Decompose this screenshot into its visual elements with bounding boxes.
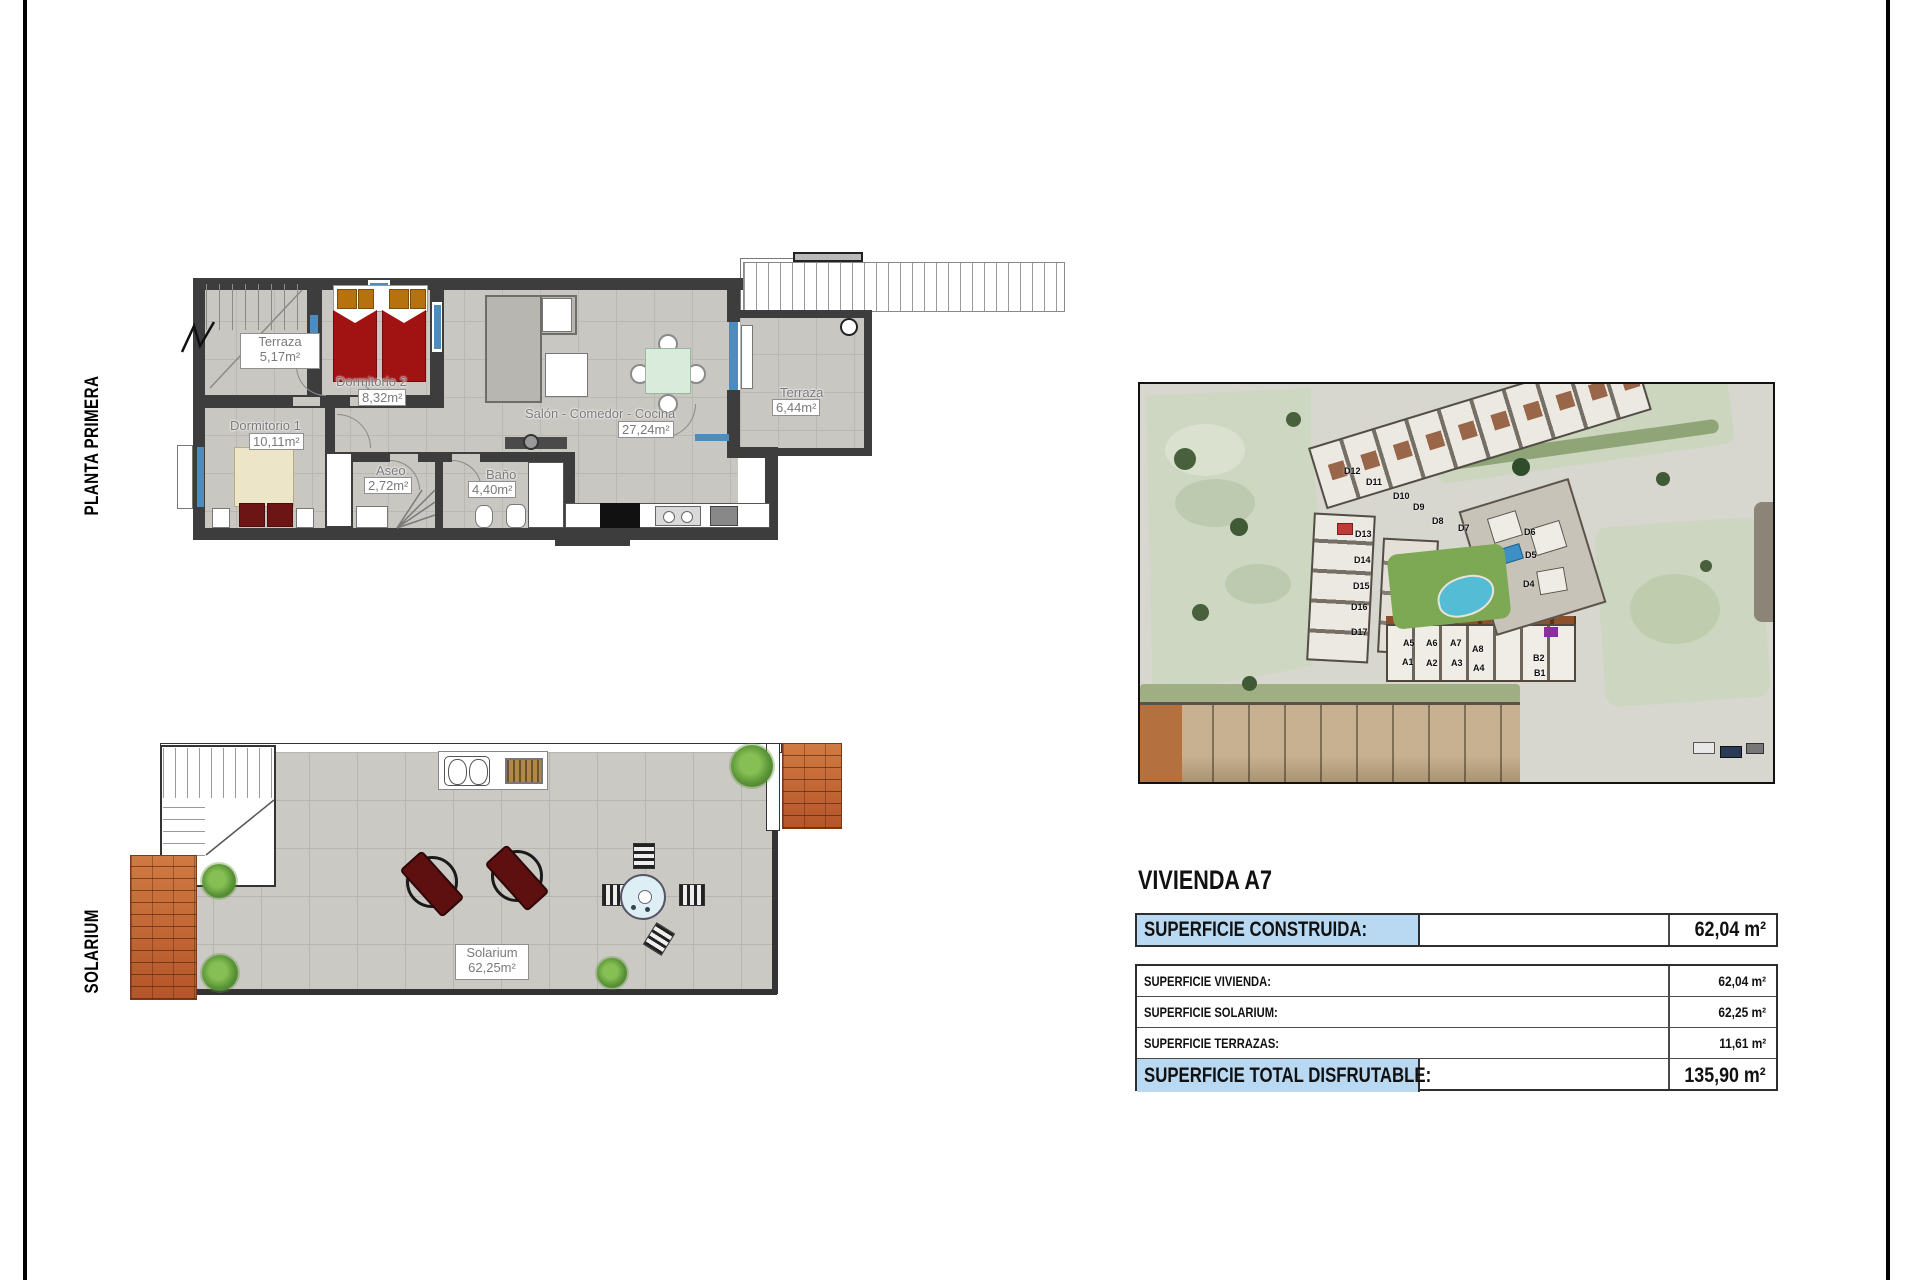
- page-border-left: [23, 0, 27, 1280]
- unit-label: A1: [1402, 657, 1414, 667]
- wall: [325, 408, 335, 452]
- plant: [731, 745, 773, 787]
- shutter-box: [177, 445, 193, 509]
- summary-table: SUPERFICIE CONSTRUIDA: 62,04 m²: [1135, 913, 1778, 947]
- room-area: 27,24m²: [618, 421, 674, 438]
- bath-sink: [475, 505, 493, 528]
- sink-bowl: [469, 759, 488, 785]
- stair-treads: [163, 798, 205, 856]
- unit-label: D11: [1366, 477, 1382, 487]
- tree: [1242, 676, 1257, 691]
- unit-title: VIVIENDA A7: [1138, 865, 1306, 896]
- wall: [727, 390, 740, 450]
- plan-sheet-page: PLANTA PRIMERA SOLARIUM: [0, 0, 1920, 1280]
- row-value: 11,61 m²: [1711, 1028, 1766, 1058]
- sink-bowl: [448, 759, 467, 785]
- terrace-column: [840, 318, 858, 336]
- table-detail: [631, 905, 636, 910]
- table-detail: [645, 907, 650, 912]
- sofa-chaise: [485, 295, 542, 403]
- pillow: [239, 503, 265, 527]
- building: [1536, 567, 1568, 595]
- field-texture: [1225, 564, 1291, 604]
- existing-house-roof: [1140, 702, 1182, 784]
- tree: [1230, 518, 1248, 536]
- room-area: 8,32m²: [358, 389, 406, 406]
- colored-awning: [1544, 627, 1558, 637]
- tree: [1700, 560, 1712, 572]
- palm-tree: [1512, 458, 1530, 476]
- row-label: SUPERFICIE VIVIENDA:: [1137, 966, 1776, 996]
- window-glass: [197, 447, 204, 507]
- room-name: Terraza: [780, 385, 823, 400]
- existing-houses-row: [1140, 702, 1520, 784]
- unit-label: A6: [1426, 638, 1438, 648]
- room-name: Terraza: [244, 334, 316, 349]
- unit-label: D9: [1413, 502, 1425, 512]
- terrace-door-glass: [695, 434, 729, 441]
- room-area: 6,44m²: [772, 399, 820, 416]
- roof-tiles: [782, 743, 842, 829]
- highlight-cell: SUPERFICIE TOTAL DISFRUTABLE:: [1137, 1059, 1420, 1092]
- striped-chair: [633, 843, 655, 869]
- kitchen-sink: [655, 506, 701, 526]
- pillow: [267, 503, 293, 527]
- sink-bowl: [681, 511, 693, 523]
- room-area: 62,25m²: [459, 960, 525, 975]
- shutter-box: [741, 325, 753, 389]
- side-label-solarium: SOLARIUM: [82, 912, 104, 1004]
- pillow: [389, 289, 409, 309]
- window-glass: [729, 322, 738, 390]
- room-area: 4,40m²: [468, 481, 516, 498]
- shower: [528, 462, 564, 528]
- room-area: 2,72m²: [364, 477, 412, 494]
- unit-label: A2: [1426, 658, 1438, 668]
- roof-tiles: [130, 855, 197, 1000]
- exterior-stair: [743, 262, 1065, 312]
- room-name: Baño: [486, 467, 516, 482]
- terrace-floor: [740, 316, 864, 452]
- row-value: 62,04 m²: [1710, 966, 1766, 996]
- bed: [234, 447, 294, 507]
- wall: [738, 310, 872, 318]
- pillow: [337, 289, 357, 309]
- stair-edge-bar: [793, 252, 863, 262]
- row-label: SUPERFICIE SOLARIUM:: [1137, 997, 1776, 1027]
- unit-label: D5: [1525, 550, 1537, 560]
- wall: [740, 448, 872, 456]
- unit-label: D16: [1351, 602, 1368, 612]
- pillow: [410, 289, 426, 309]
- car: [1720, 746, 1742, 758]
- table-row: SUPERFICIE TERRAZAS: 11,61 m²: [1137, 1028, 1776, 1059]
- field-texture: [1630, 574, 1720, 644]
- wall: [555, 538, 630, 546]
- room-area: 5,17m²: [244, 349, 316, 364]
- summary-label: SUPERFICIE CONSTRUIDA:: [1137, 915, 1418, 945]
- side-label-planta-primera: PLANTA PRIMERA: [82, 368, 104, 533]
- car: [1746, 743, 1764, 754]
- page-border-right: [1886, 0, 1890, 1280]
- unit-label: D7: [1458, 523, 1470, 533]
- table-row-total: SUPERFICIE TOTAL DISFRUTABLE: 135,90 m²: [1137, 1059, 1776, 1092]
- unit-label: A8: [1472, 644, 1484, 654]
- tree: [1656, 472, 1670, 486]
- pillow: [358, 289, 374, 309]
- closet: [325, 452, 353, 528]
- plant: [597, 958, 627, 988]
- column-divider: [1668, 966, 1670, 1089]
- car: [1693, 742, 1715, 754]
- appliance: [710, 506, 738, 526]
- tree: [1174, 448, 1196, 470]
- row-label: SUPERFICIE TERRAZAS:: [1137, 1028, 1776, 1058]
- room-label-solarium: Solarium 62,25m²: [455, 944, 529, 980]
- plant: [202, 955, 238, 991]
- unit-label: A4: [1473, 663, 1485, 673]
- door-opening: [293, 397, 323, 406]
- row-value: 135,90 m²: [1670, 1059, 1766, 1092]
- hedge: [1140, 684, 1520, 704]
- aseo-sink: [356, 506, 388, 528]
- unit-label: A3: [1451, 658, 1463, 668]
- row-value: 62,25 m²: [1710, 997, 1766, 1027]
- room-name: Aseo: [376, 463, 406, 478]
- tree: [1286, 412, 1301, 427]
- summary-value: 62,04 m²: [1682, 915, 1766, 945]
- dining-table: [645, 348, 691, 394]
- column-divider: [1668, 915, 1670, 945]
- dark-lot: [1754, 502, 1775, 622]
- unit-label: A7: [1450, 638, 1462, 648]
- unit-label: D17: [1351, 627, 1368, 637]
- table-row: SUPERFICIE VIVIENDA: 62,04 m²: [1137, 966, 1776, 997]
- cooktop: [600, 503, 640, 528]
- striped-chair: [679, 884, 705, 906]
- plant: [202, 864, 236, 898]
- table-detail: [638, 890, 652, 904]
- side-table: [542, 298, 572, 332]
- stair-diagonal: [204, 798, 276, 858]
- bed-sheet-fold: [333, 310, 377, 323]
- toilet: [506, 504, 526, 528]
- room-name: Salón - Comedor - Cocina: [525, 406, 675, 421]
- sink-bowl: [663, 511, 675, 523]
- nightstand: [296, 508, 314, 528]
- aseo-shower-lines: [394, 488, 438, 530]
- unit-label: D14: [1354, 555, 1371, 565]
- parapet-wall: [165, 989, 777, 995]
- room-label-terraza1: Terraza 5,17m²: [240, 333, 320, 369]
- highlight-cell: SUPERFICIE CONSTRUIDA:: [1137, 915, 1420, 945]
- stair-treads: [163, 748, 273, 798]
- table-row: SUPERFICIE SOLARIUM: 62,25 m²: [1137, 997, 1776, 1028]
- unit-label: D15: [1353, 581, 1370, 591]
- unit-label: B2: [1533, 653, 1545, 663]
- unit-label: D10: [1393, 491, 1410, 501]
- unit-label: B1: [1534, 668, 1546, 678]
- room-name: Dormitorio 1: [230, 418, 301, 433]
- site-aerial-map: D12 D11 D10 D9 D8 D7 D13 D14 D15 D16 D17…: [1138, 382, 1775, 784]
- unit-label: D4: [1523, 579, 1535, 589]
- room-area: 10,11m²: [249, 433, 304, 450]
- unit-label: D12: [1344, 466, 1361, 476]
- wall: [193, 528, 778, 540]
- tv-console-knob: [523, 434, 539, 450]
- unit-label: D13: [1355, 529, 1372, 539]
- colored-awning: [1337, 523, 1353, 535]
- unit-label: A5: [1403, 638, 1415, 648]
- bbq-grill: [505, 758, 543, 784]
- surface-info-panel: VIVIENDA A7 SUPERFICIE CONSTRUIDA: 62,04…: [1135, 860, 1778, 1095]
- unit-label: D8: [1432, 516, 1444, 526]
- row-label: SUPERFICIE TOTAL DISFRUTABLE:: [1137, 1059, 1418, 1092]
- bed-sheet-fold: [382, 310, 426, 323]
- nightstand: [212, 508, 230, 528]
- room-name: Solarium: [459, 945, 525, 960]
- window-glass: [434, 305, 441, 349]
- room-name: Dormitorio 2: [336, 374, 407, 389]
- coffee-table: [545, 353, 588, 397]
- detail-table: SUPERFICIE VIVIENDA: 62,04 m² SUPERFICIE…: [1135, 964, 1778, 1091]
- tree: [1192, 604, 1209, 621]
- wall: [864, 310, 872, 456]
- unit-label: D6: [1524, 527, 1536, 537]
